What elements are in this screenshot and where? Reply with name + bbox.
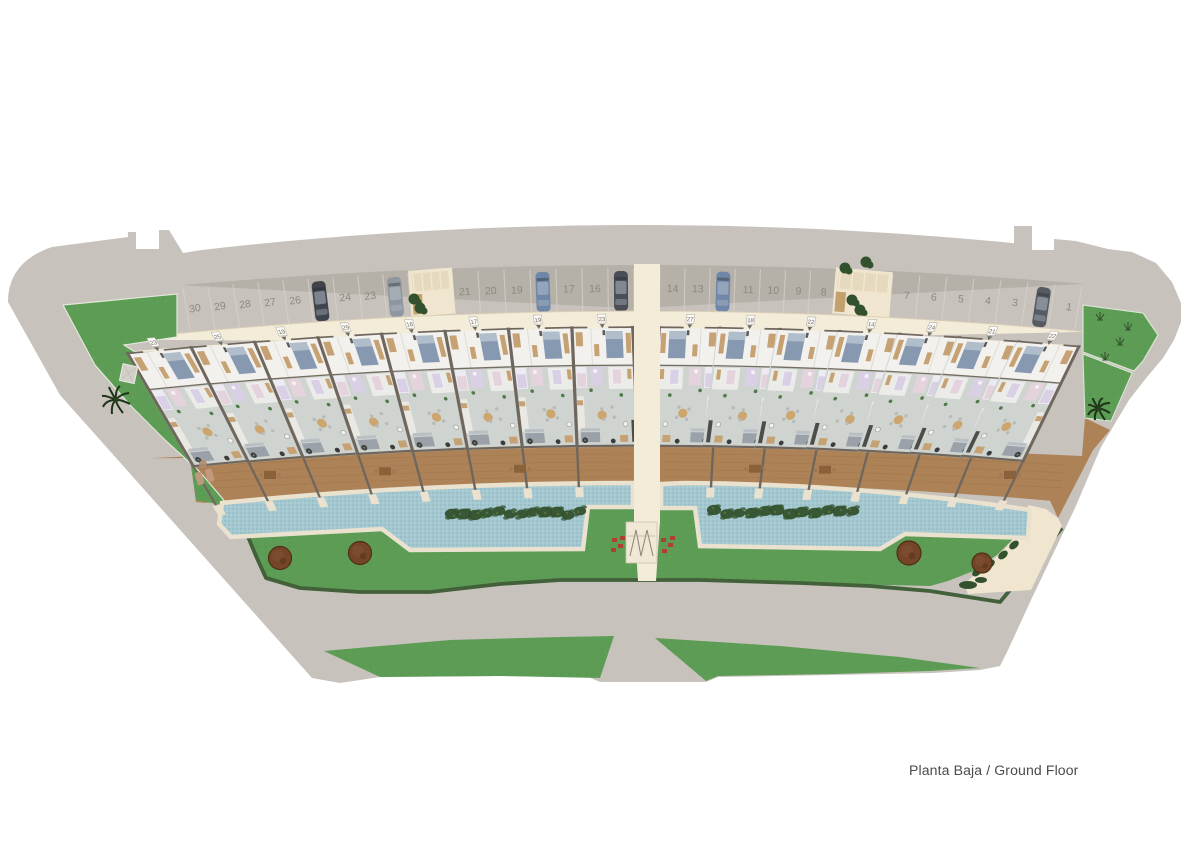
svg-text:14: 14	[667, 283, 679, 295]
svg-text:Planta Baja / Ground Floor: Planta Baja / Ground Floor	[909, 762, 1079, 778]
svg-text:21: 21	[459, 286, 472, 299]
svg-text:26: 26	[289, 294, 302, 307]
svg-text:29: 29	[213, 300, 227, 314]
svg-text:23: 23	[599, 317, 607, 323]
svg-text:27: 27	[263, 296, 276, 310]
svg-text:8: 8	[820, 286, 827, 298]
svg-text:9: 9	[795, 285, 802, 297]
svg-text:24: 24	[339, 291, 352, 304]
svg-text:23: 23	[364, 290, 377, 303]
svg-text:13: 13	[692, 283, 704, 295]
svg-text:30: 30	[188, 302, 202, 316]
svg-text:28: 28	[238, 298, 251, 312]
svg-text:27: 27	[687, 317, 695, 323]
svg-text:11: 11	[742, 284, 754, 296]
svg-text:19: 19	[511, 284, 523, 297]
svg-text:20: 20	[485, 285, 497, 298]
svg-text:17: 17	[563, 283, 575, 295]
svg-text:10: 10	[767, 285, 779, 298]
svg-text:16: 16	[589, 283, 601, 295]
